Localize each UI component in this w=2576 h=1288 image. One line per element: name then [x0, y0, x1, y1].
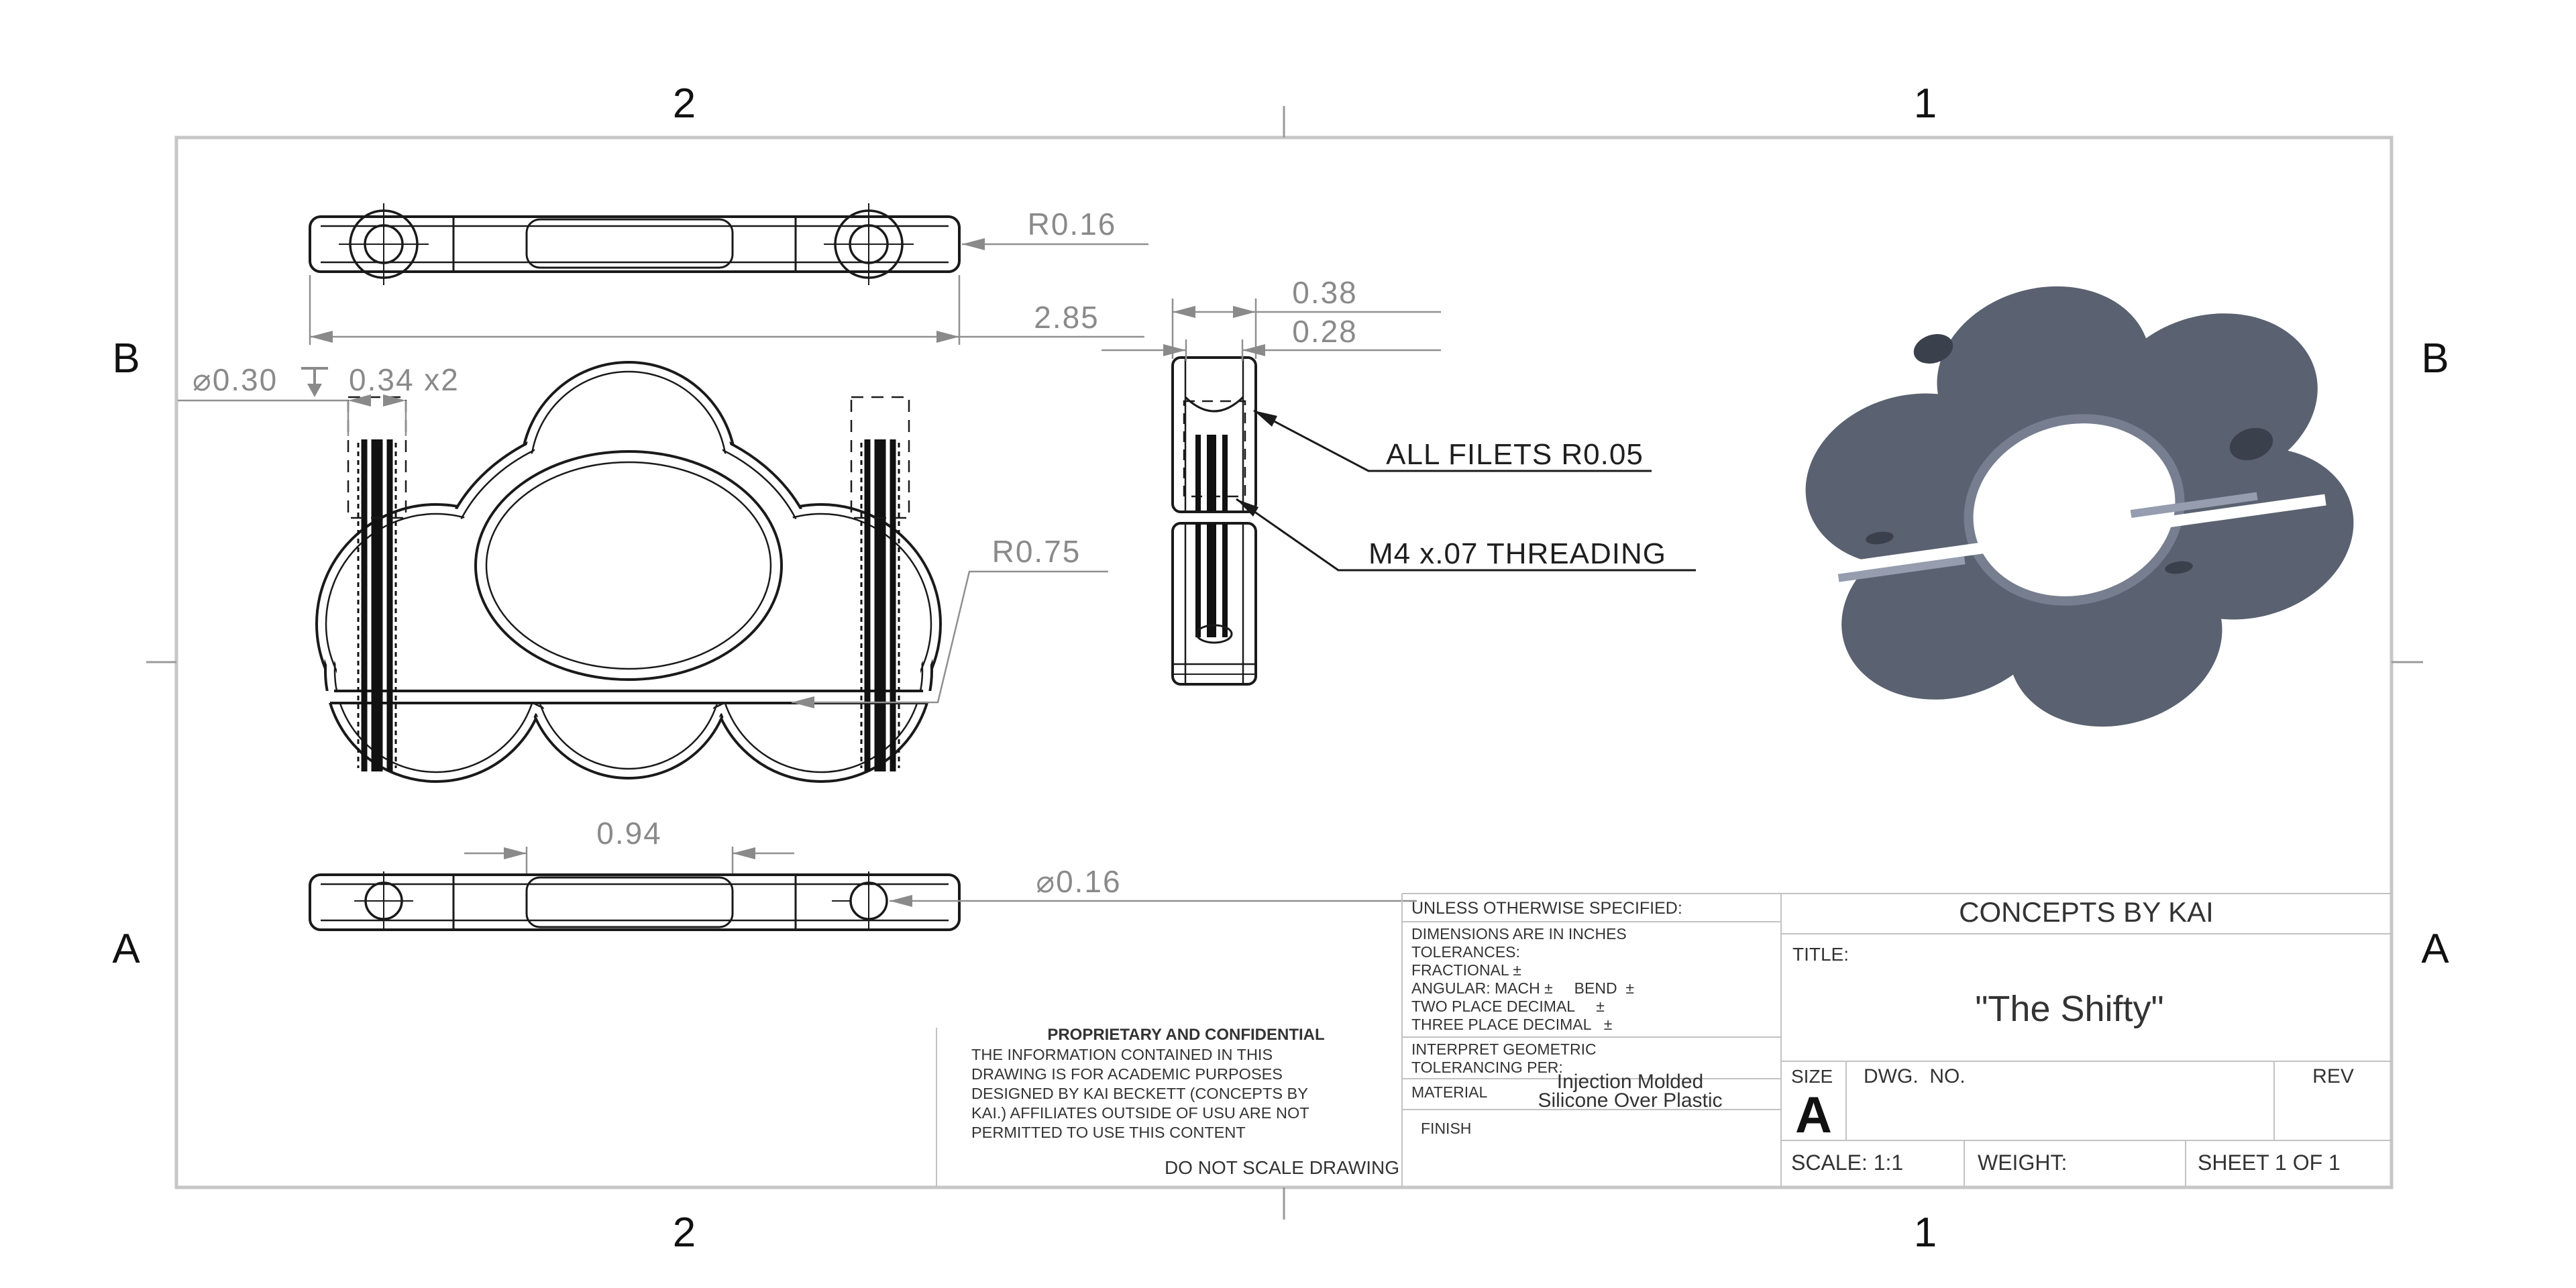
dim-side-width-text: 0.38: [1292, 275, 1358, 310]
company-name: CONCEPTS BY KAI: [1959, 896, 2214, 928]
dim-bar-length-text: 2.85: [1034, 300, 1099, 335]
side-view: [1173, 358, 1256, 684]
dwg-no-label: DWG. NO.: [1864, 1065, 1966, 1087]
finish-label: FINISH: [1421, 1120, 1471, 1137]
dim-cbore-dia-text: ⌀0.30: [193, 362, 278, 397]
zone-top-1: 1: [1914, 80, 1937, 127]
dim-mid-length: 0.94: [464, 816, 794, 873]
dim-bore-radius-text: R0.75: [992, 534, 1081, 569]
proprietary-line-1: THE INFORMATION CONTAINED IN THIS: [971, 1046, 1273, 1063]
do-not-scale-text: DO NOT SCALE DRAWING: [1165, 1157, 1399, 1178]
proprietary-line-5: PERMITTED TO USE THIS CONTENT: [971, 1124, 1246, 1141]
zone-left-b: B: [112, 335, 140, 382]
dim-hole-dia-text: ⌀0.16: [1036, 864, 1121, 899]
weight-label: WEIGHT:: [1978, 1150, 2067, 1175]
tolerance-line-4: ANGULAR: MACH ± BEND ±: [1411, 979, 1634, 997]
dim-counterbore-callout: ⌀0.30 0.34 x2: [178, 362, 460, 436]
rev-label: REV: [2312, 1065, 2354, 1087]
tolerance-line-1: DIMENSIONS ARE IN INCHES: [1411, 925, 1627, 943]
proprietary-heading: PROPRIETARY AND CONFIDENTIAL: [1047, 1026, 1324, 1044]
interpret-line-1: INTERPRET GEOMETRIC: [1411, 1040, 1597, 1058]
proprietary-block: PROPRIETARY AND CONFIDENTIAL THE INFORMA…: [936, 1026, 1399, 1187]
sheet-label: SHEET 1 OF 1: [2198, 1150, 2341, 1175]
dim-hole-dia: ⌀0.16: [890, 864, 1417, 907]
zone-bottom-2: 2: [673, 1210, 696, 1256]
tolerance-line-6: THREE PLACE DECIMAL ±: [1411, 1016, 1612, 1033]
note-fillets: ALL FILETS R0.05: [1254, 411, 1652, 471]
interpret-line-2: TOLERANCING PER:: [1411, 1059, 1563, 1076]
isometric-view: [1768, 223, 2392, 790]
proprietary-line-2: DRAWING IS FOR ACADEMIC PURPOSES: [971, 1065, 1283, 1083]
proprietary-line-4: KAI.) AFFILIATES OUTSIDE OF USU ARE NOT: [971, 1104, 1309, 1122]
drawing-title: "The Shifty": [1975, 989, 2163, 1029]
tolerance-line-5: TWO PLACE DECIMAL ±: [1411, 998, 1605, 1015]
size-value: A: [1795, 1087, 1832, 1144]
material-value-2: Silicone Over Plastic: [1538, 1089, 1722, 1112]
proprietary-line-3: DESIGNED BY KAI BECKETT (CONCEPTS BY: [971, 1085, 1308, 1102]
dim-mid-length-text: 0.94: [596, 816, 662, 851]
drawing-canvas: 2 1 2 1 B A B A R0.16: [0, 0, 2576, 1288]
zone-top-2: 2: [673, 80, 696, 127]
size-label: SIZE: [1791, 1066, 1833, 1087]
note-fillets-text: ALL FILETS R0.05: [1386, 438, 1644, 471]
zone-left-a: A: [112, 926, 140, 972]
unless-otherwise-text: UNLESS OTHERWISE SPECIFIED:: [1411, 899, 1682, 918]
top-view-bar: [310, 203, 959, 285]
dim-cbore-depth-text: 0.34 x2: [349, 362, 460, 397]
dim-corner-radius: R0.16: [962, 207, 1148, 250]
title-label: TITLE:: [1792, 944, 1849, 965]
dim-bar-length: 2.85: [310, 275, 1144, 345]
bottom-view-bar: [310, 871, 959, 931]
title-block: UNLESS OTHERWISE SPECIFIED: DIMENSIONS A…: [1402, 894, 2392, 1187]
note-threading: M4 x.07 THREADING: [1236, 499, 1696, 570]
note-threading-text: M4 x.07 THREADING: [1368, 537, 1666, 570]
dim-corner-radius-text: R0.16: [1028, 207, 1117, 241]
dim-side-inner-width-text: 0.28: [1292, 314, 1358, 349]
scale-value: SCALE: 1:1: [1791, 1150, 1903, 1175]
drawing-sheet: 2 1 2 1 B A B A R0.16: [0, 0, 2576, 1288]
dim-side-inner-width: 0.28: [1102, 314, 1441, 361]
through-hole-right: [832, 871, 887, 931]
zone-bottom-1: 1: [1914, 1210, 1937, 1256]
tolerance-line-2: TOLERANCES:: [1411, 943, 1520, 961]
material-label: MATERIAL: [1411, 1083, 1488, 1101]
through-hole-left: [354, 871, 413, 931]
zone-right-a: A: [2421, 926, 2449, 972]
zone-right-b: B: [2421, 335, 2449, 382]
tolerance-line-3: FRACTIONAL ±: [1411, 961, 1521, 979]
